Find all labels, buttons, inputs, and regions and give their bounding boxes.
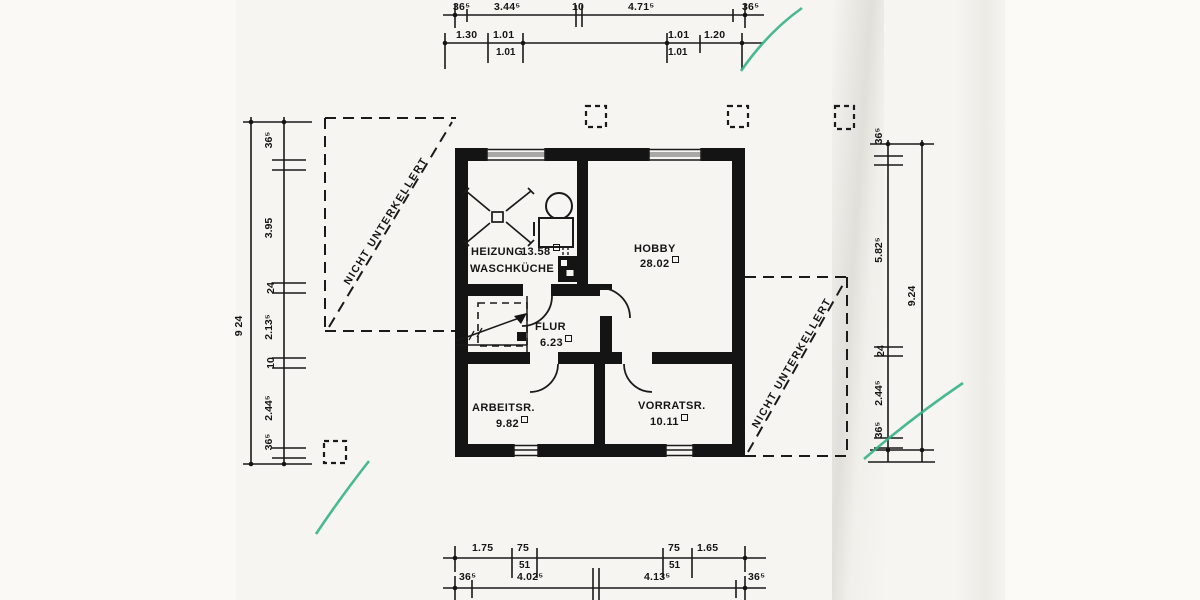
flue-connection [563,247,568,256]
room-label-flur: FLUR [535,321,566,333]
dim-left-5: 2.44⁵ [263,395,275,420]
room-label-hobby: HOBBY [634,243,676,255]
dim-bottom1-3: 1.65 [697,542,718,554]
dim-left-3: 2.13⁵ [263,314,275,339]
dim-right-2: 24 [875,345,887,357]
room-area-arbeitsraum: 9.82 [496,418,528,430]
room-area-heizung: 13.58 [521,246,560,258]
dim-top2sub-0: 1.01 [496,47,515,58]
dim-left-0: 36⁵ [263,132,275,149]
dim-top2-1: 1.01 [493,29,514,41]
dim-right-total: 9.24 [906,286,918,306]
chimney-block [558,256,578,282]
dim-top1-0: 36⁵ [453,1,470,13]
dim-bottom1-2: 75 [668,542,680,554]
dim-top1-2: 10 [572,1,584,13]
room-area-vorratsraum: 10.11 [650,416,688,428]
scanned-floorplan-page: HEIZUNG 13.58 WASCHKÜCHE HOBBY 28.02 FLU… [0,0,1200,600]
dim-right-0: 36⁵ [873,128,885,145]
floorplan-drawing [0,0,1200,600]
dim-bottom1sub-0: 51 [519,560,530,571]
boiler-circle [546,193,572,219]
dim-bottom1-1: 75 [517,542,529,554]
dim-top2sub-1: 1.01 [668,47,687,58]
room-area-flur: 6.23 [540,337,572,349]
nicht-unterkellert-region-left [325,118,458,331]
dim-bottom1sub-1: 51 [669,560,680,571]
dim-bottom2-1: 4.02⁵ [517,571,543,583]
dim-bottom2-3: 36⁵ [748,571,765,583]
dim-top2-2: 1.01 [668,29,689,41]
dim-right-3: 2.44⁵ [873,380,885,405]
dim-bottom1-0: 1.75 [472,542,493,554]
dim-left-1: 3.95 [263,218,275,238]
appliance-rect [534,218,573,247]
dim-top1-1: 3.44⁵ [494,1,520,13]
sqm-symbol [672,256,679,263]
room-label-vorratsraum: VORRATSR. [638,400,706,412]
sqm-symbol [553,244,560,251]
room-area-hobby: 28.02 [640,258,679,270]
sqm-symbol [521,416,528,423]
dim-left-6: 36⁵ [263,434,275,451]
dim-top1-3: 4.71⁵ [628,1,654,13]
dim-left-4: 10 [265,357,277,369]
dim-left-total: 9 24 [233,316,245,336]
room-label-arbeitsraum: ARBEITSR. [472,402,535,414]
room-label-heizung: HEIZUNG [471,246,523,258]
dim-right-1: 5.82⁵ [873,237,885,262]
dim-top2-0: 1.30 [456,29,477,41]
sqm-symbol [681,414,688,421]
room-label-waschkueche: WASCHKÜCHE [470,263,554,275]
dim-top1-4: 36⁵ [742,1,759,13]
dim-right-4: 36⁵ [873,422,885,439]
dim-top2-3: 1.20 [704,29,725,41]
dim-bottom2-0: 36⁵ [459,571,476,583]
dim-left-2: 24 [265,282,277,294]
floor-drain-symbol [463,188,534,246]
sqm-symbol [565,335,572,342]
dim-bottom2-2: 4.13⁵ [644,571,670,583]
